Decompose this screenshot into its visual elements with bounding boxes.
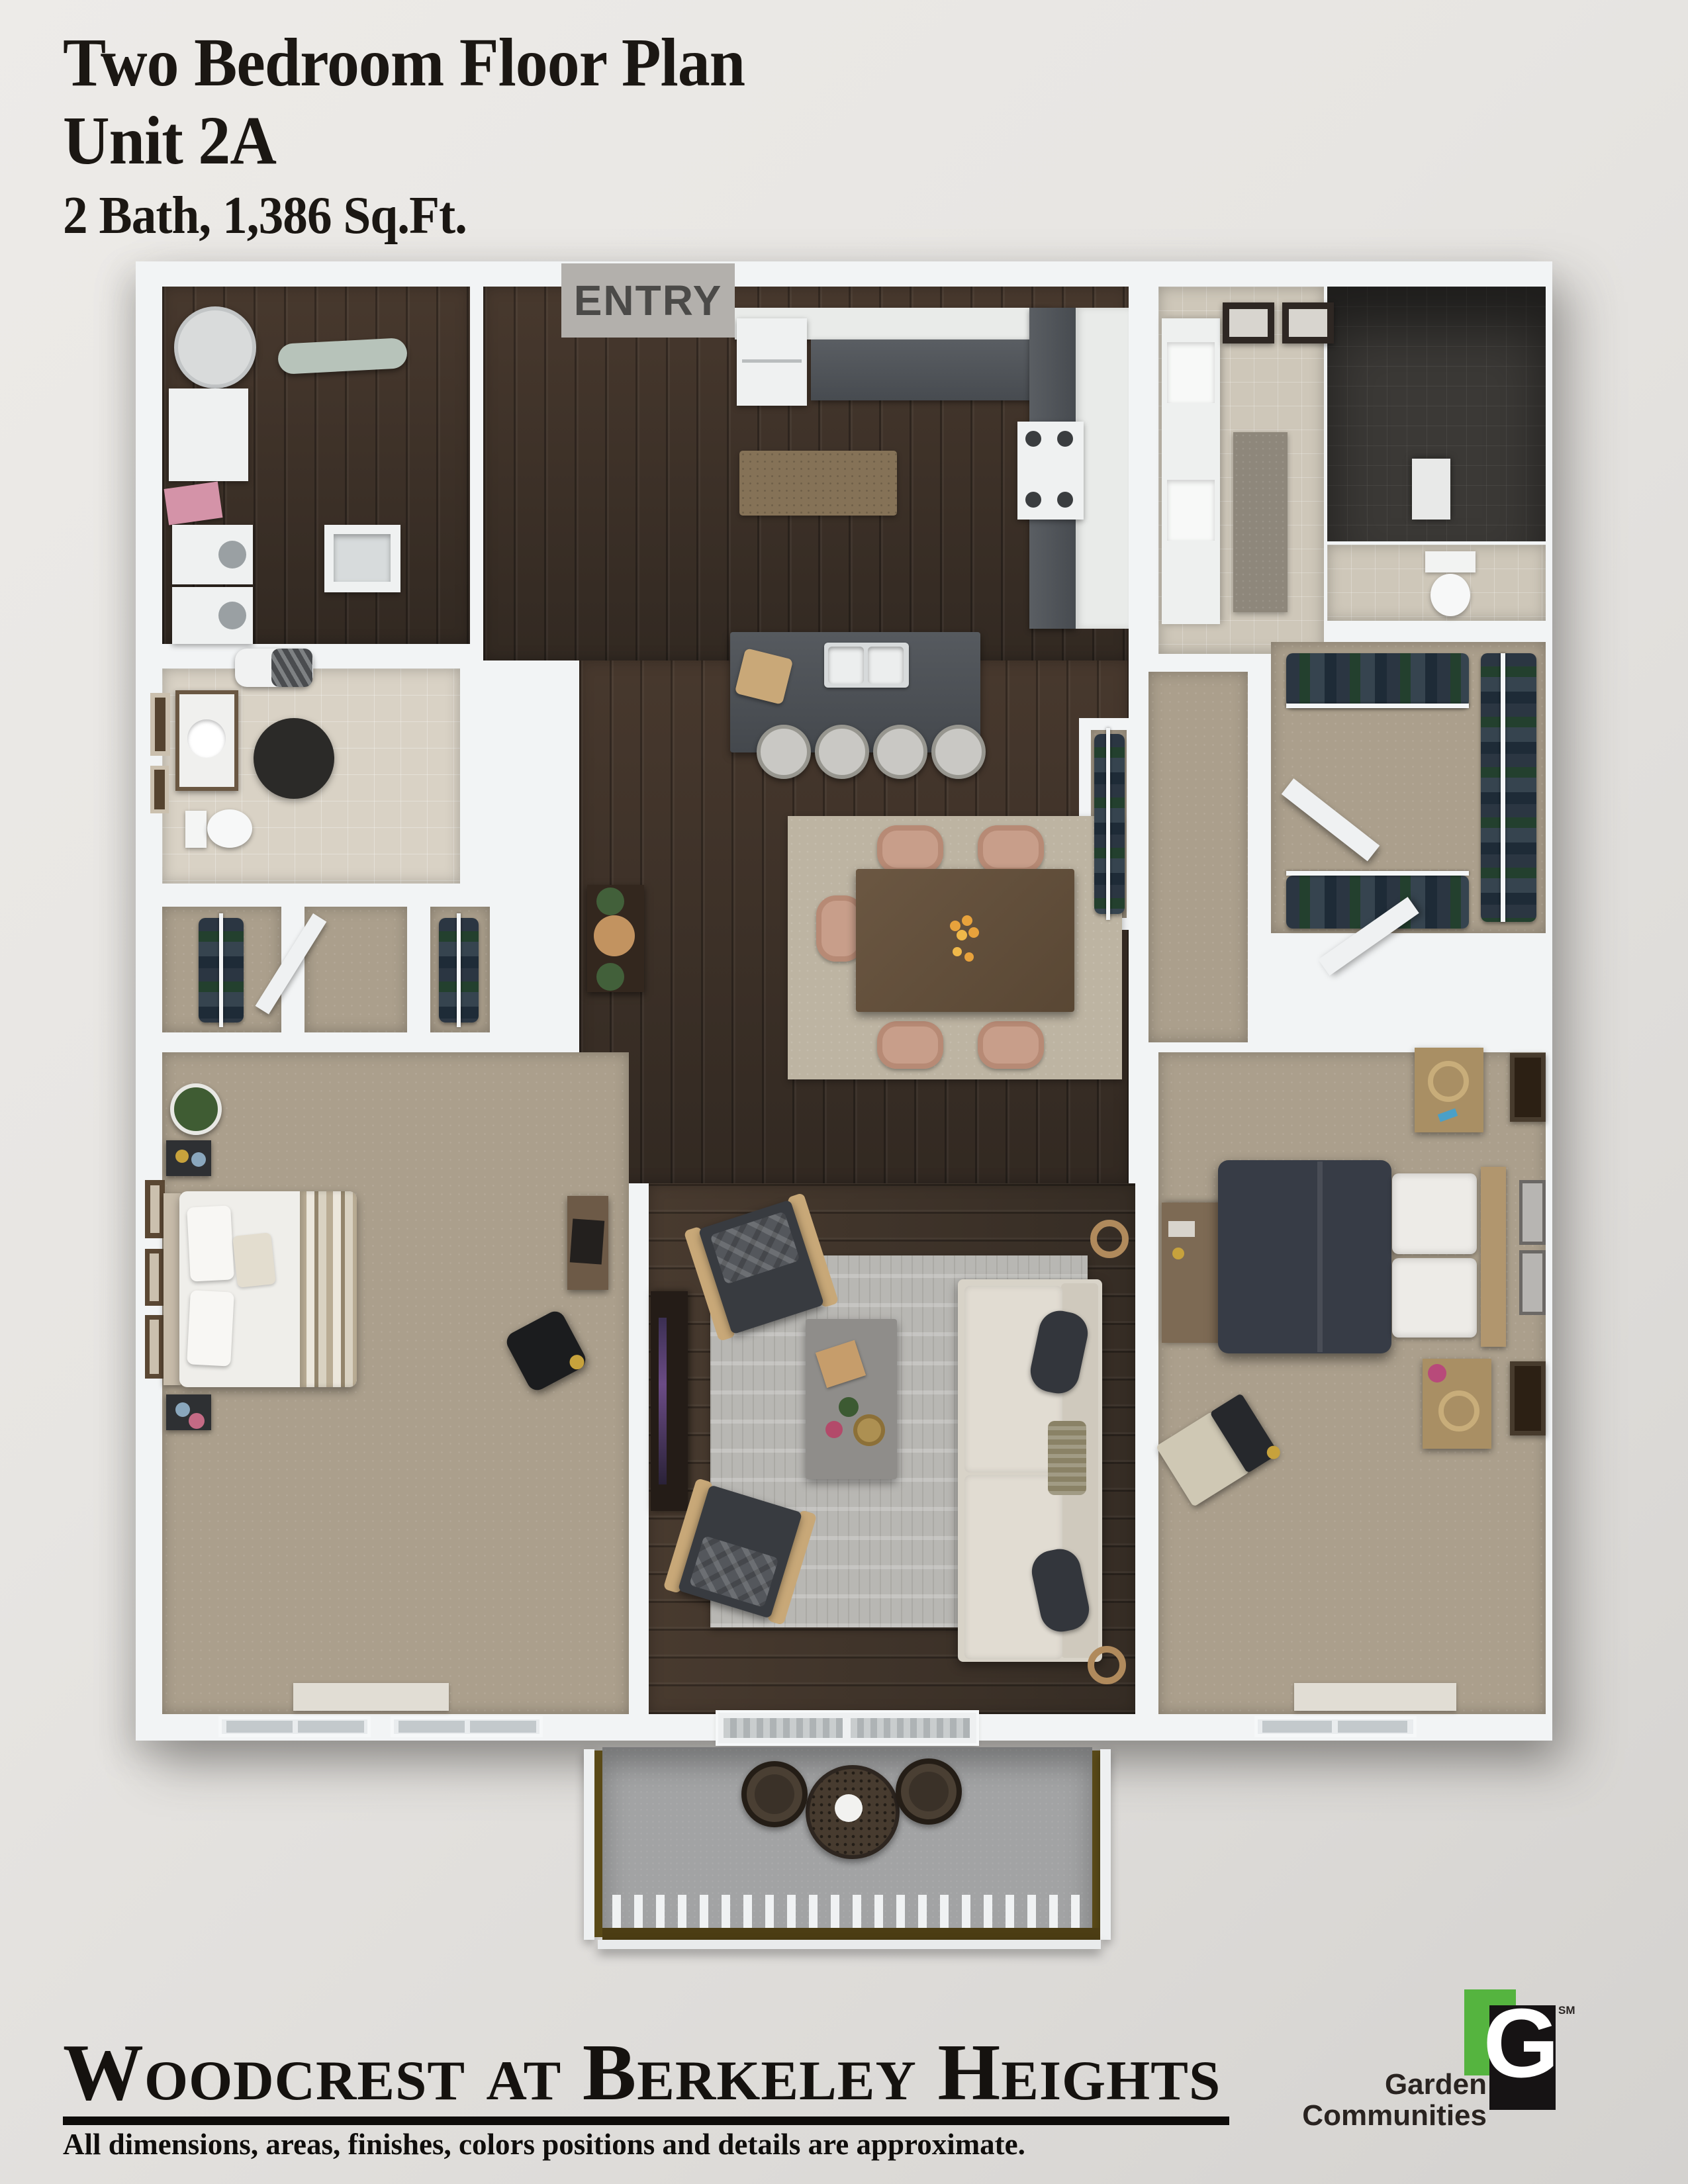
nightstand [166, 1140, 211, 1176]
burner [1057, 431, 1073, 447]
patio-chair [896, 1758, 962, 1825]
patio-table-centerpiece [835, 1794, 863, 1822]
master-headboard [1481, 1167, 1506, 1347]
dresser-tray [1168, 1221, 1195, 1237]
nightstand-decor [175, 1150, 189, 1163]
burner [1025, 492, 1041, 508]
walkin-rod-top [1286, 704, 1469, 708]
tv-console [651, 1291, 688, 1511]
dining-chair [978, 825, 1044, 873]
bathroom2-vanity [175, 690, 238, 791]
plan-title: Two Bedroom Floor Plan [63, 24, 745, 102]
dining-chair [877, 1021, 943, 1069]
blanket-fold [1317, 1161, 1323, 1352]
toilet-tank [185, 811, 207, 848]
master-vanity [1162, 318, 1220, 624]
master-toilet-bowl [1430, 574, 1470, 616]
patio-table [806, 1765, 900, 1859]
fruit [964, 952, 974, 962]
washer-door [218, 541, 246, 569]
floor-plan-rendering: ENTRY [136, 261, 1552, 1959]
laundry-basket-pink [164, 482, 223, 525]
patio-rail-base [598, 1940, 1101, 1949]
dryer-door [218, 602, 246, 629]
header: Two Bedroom Floor Plan Unit 2A 2 Bath, 1… [63, 24, 745, 251]
master-window [1254, 1716, 1417, 1737]
bathroom2-art-frame [150, 766, 169, 813]
footer-rule [63, 2116, 1229, 2125]
fruit [957, 930, 967, 940]
bed2-pillow [187, 1205, 234, 1281]
sliding-door-panel [851, 1718, 970, 1738]
kitchen-rug [739, 451, 897, 516]
patterned-pillow [1048, 1421, 1086, 1495]
kitchen-counter-top-run [811, 340, 1049, 400]
decor-basket [853, 1414, 885, 1446]
table-lamp [1438, 1390, 1479, 1432]
walkin-rod-right [1501, 653, 1505, 922]
master-window-rug [1294, 1683, 1456, 1711]
window-pane [1262, 1721, 1332, 1733]
side-table-ring [1088, 1646, 1126, 1684]
window-pane [1338, 1721, 1407, 1733]
bedroom2-wall-art [145, 1180, 165, 1238]
bath-sqft-subtitle: 2 Bath, 1,386 Sq.Ft. [63, 180, 745, 251]
dining-chair [978, 1021, 1044, 1069]
patio-rail-right [1092, 1751, 1100, 1937]
burner [1057, 492, 1073, 508]
window-pane [226, 1721, 293, 1733]
wall-art-frame [1223, 302, 1274, 343]
patio-post-left [584, 1749, 594, 1940]
master-nightstand [1415, 1048, 1483, 1132]
walkin-rod-bottom [1286, 871, 1469, 876]
vanity-sink [187, 719, 226, 758]
disclaimer-text: All dimensions, areas, finishes, colors … [63, 2127, 1025, 2161]
decor-plate [594, 915, 635, 956]
nightstand-decor [1438, 1109, 1458, 1122]
utility-sink-bowl [334, 534, 391, 582]
fruit [968, 927, 979, 938]
sofa [958, 1279, 1102, 1662]
washer [172, 525, 253, 584]
console-plant [596, 963, 624, 991]
coffee-table-book [816, 1340, 866, 1388]
bath-runner-rug [1233, 432, 1288, 612]
bar-stool [815, 725, 869, 779]
closet-small-rod [457, 913, 461, 1027]
utility-sink [324, 525, 400, 592]
patio-rail-cap [602, 1928, 1100, 1940]
bedroom2-wall-art [145, 1315, 164, 1379]
kitchen-right-cabinets [1076, 308, 1129, 629]
entry-label: ENTRY [574, 276, 723, 325]
dryer [172, 587, 253, 644]
master-pillow [1392, 1258, 1477, 1338]
master-sink [1167, 342, 1215, 403]
master-sink [1167, 480, 1215, 541]
wall-art-frame [1282, 302, 1334, 343]
flower-decor [1428, 1364, 1446, 1383]
round-bath-rug [254, 718, 334, 799]
table-lamp [1428, 1061, 1469, 1102]
coffee-table [806, 1319, 897, 1479]
nightstand-decor [175, 1402, 190, 1417]
bedroom2-window [391, 1716, 543, 1737]
sliding-glass-door [718, 1713, 976, 1743]
patio-rail-left [594, 1751, 602, 1937]
master-hallway-floor [1149, 672, 1248, 1042]
bedroom2-window-rug [293, 1683, 449, 1711]
master-wall-art [1519, 1250, 1546, 1315]
tv-screen [659, 1318, 667, 1484]
patio-post-right [1100, 1749, 1111, 1940]
dresser [1162, 1203, 1223, 1343]
bed2-pillow [187, 1290, 234, 1366]
window-pane [470, 1721, 536, 1733]
bed2-striped-blanket [300, 1191, 357, 1387]
window-pane [298, 1721, 364, 1733]
logo-g-monogram: G [1481, 1995, 1561, 2093]
side-table-ring [1090, 1220, 1129, 1258]
refrigerator [737, 318, 807, 406]
logo-word-communities: Communities [1251, 2100, 1487, 2131]
stove [1017, 422, 1084, 520]
burner [1025, 431, 1041, 447]
toilet-bowl [207, 809, 252, 848]
master-wall-art [1519, 1180, 1546, 1245]
fruit [962, 915, 972, 926]
potted-plant [170, 1083, 222, 1135]
master-pillow [1392, 1173, 1477, 1254]
closet-rod [219, 913, 223, 1027]
bed2-headboard [164, 1193, 181, 1385]
water-heater [174, 306, 256, 388]
patio-balusters [612, 1895, 1082, 1929]
flyer-page: Two Bedroom Floor Plan Unit 2A 2 Bath, 1… [0, 0, 1688, 2184]
window-pane [399, 1721, 465, 1733]
bar-stool [757, 725, 811, 779]
dining-table [856, 869, 1074, 1012]
laundry-cabinet [169, 388, 248, 481]
refrigerator-handle [742, 359, 802, 363]
master-toilet-tank [1425, 551, 1476, 572]
sink-bowl-left [828, 647, 864, 684]
bathroom2-mirror [150, 693, 170, 756]
console-table [587, 885, 644, 992]
shower-curtain [271, 649, 312, 687]
unit-title: Unit 2A [63, 102, 745, 180]
master-wall-art [1510, 1053, 1546, 1122]
bedroom2-wall-art [145, 1249, 164, 1306]
logo-word-garden: Garden [1251, 2069, 1487, 2100]
dresser-decor [1172, 1248, 1184, 1259]
bed2-accent-pillow [232, 1232, 276, 1288]
community-name: Woodcrest at Berkeley Heights [63, 2026, 1248, 2119]
logo-wordmark: Garden Communities [1251, 2069, 1487, 2131]
master-nightstand [1423, 1359, 1491, 1449]
master-wall-art [1510, 1361, 1546, 1435]
nightstand-decor [191, 1152, 206, 1167]
fruit [950, 921, 961, 931]
nightstand [166, 1394, 211, 1430]
sink-bowl-right [868, 647, 904, 684]
entry-threshold: ENTRY [561, 263, 735, 338]
coffee-table-plant [839, 1397, 859, 1417]
master-bed-blanket [1218, 1160, 1391, 1353]
linen-closet-rod [1106, 728, 1110, 920]
flower-decor [189, 1413, 205, 1429]
console-plant [596, 887, 624, 915]
walkin-clothes-top [1286, 653, 1469, 707]
sliding-door-panel [724, 1718, 843, 1738]
patio-chair [741, 1761, 808, 1827]
dining-chair [877, 825, 943, 873]
fruit [953, 947, 962, 956]
island-double-sink [824, 643, 909, 688]
bedroom2-window [218, 1716, 371, 1737]
logo-service-mark: SM [1558, 2004, 1575, 2017]
shower-control-panel [1412, 459, 1450, 520]
walkin-clothes-right [1481, 653, 1536, 922]
laptop [570, 1218, 604, 1264]
bedroom2-desk [567, 1196, 608, 1290]
bar-stool [873, 725, 927, 779]
flower-decor [825, 1421, 843, 1438]
bar-stool [931, 725, 986, 779]
